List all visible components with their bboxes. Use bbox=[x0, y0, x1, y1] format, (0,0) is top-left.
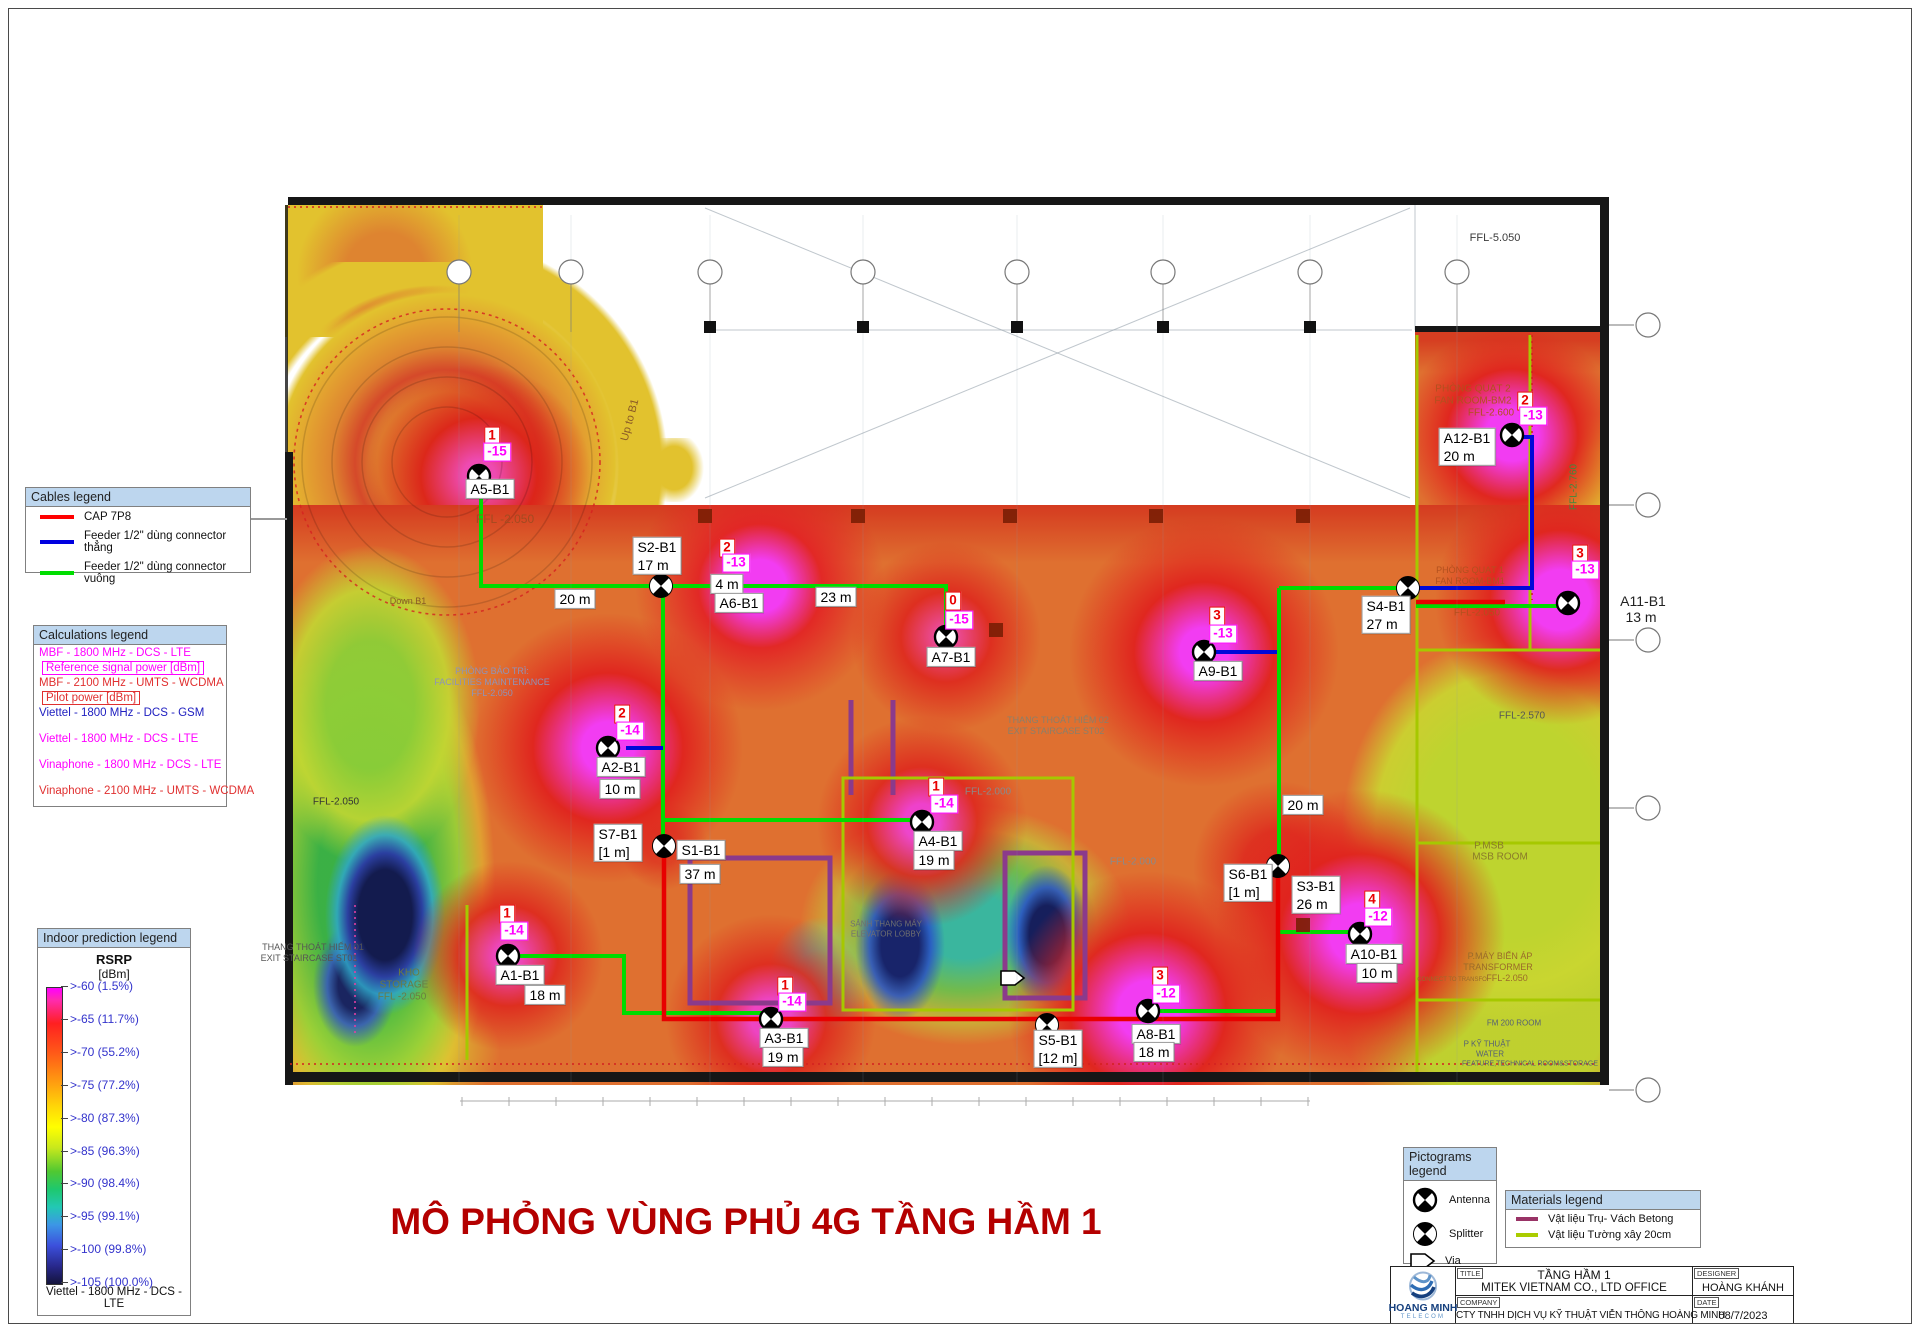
device-label[interactable]: A7-B1 bbox=[927, 647, 976, 667]
splitter-icon bbox=[1410, 1219, 1440, 1249]
device-label[interactable]: S1-B1 bbox=[677, 840, 726, 860]
device-label[interactable]: S6-B1[1 m] bbox=[1224, 864, 1273, 902]
device-S2-B1[interactable] bbox=[646, 571, 676, 601]
scale-tick bbox=[61, 1019, 68, 1020]
device-label[interactable]: 18 m bbox=[1133, 1042, 1174, 1062]
page-title: MÔ PHỎNG VÙNG PHỦ 4G TẦNG HẦM 1 bbox=[390, 1201, 1101, 1243]
grid-bubble bbox=[1005, 260, 1029, 284]
via-icon bbox=[1001, 971, 1024, 985]
cables-legend-header: Cables legend bbox=[26, 488, 250, 507]
company-name: CTY TNHH DỊCH VỤ KỸ THUẬT VIỄN THÔNG HOÀ… bbox=[1456, 1310, 1692, 1321]
device-label[interactable]: 4 m bbox=[710, 574, 743, 594]
calculation-item: Vinaphone - 1800 MHz - DCS - LTE bbox=[39, 759, 221, 771]
antenna-pictogram bbox=[1410, 1185, 1440, 1215]
antenna-icon bbox=[1497, 420, 1527, 450]
cable-legend-label: Feeder 1/2" dùng connector vuông bbox=[84, 561, 242, 585]
scale-tick bbox=[61, 1118, 68, 1119]
cable-color-swatch bbox=[40, 515, 74, 519]
calculation-item: MBF - 1800 MHz - DCS - LTE bbox=[39, 647, 221, 659]
date-value: 08/7/2023 bbox=[1693, 1310, 1793, 1322]
scale-tick bbox=[61, 1282, 68, 1283]
device-label[interactable]: S4-B127 m bbox=[1362, 596, 1411, 634]
designer-cell: DESIGNER HOÀNG KHÁNH bbox=[1693, 1267, 1793, 1296]
grid-bubble bbox=[1636, 493, 1660, 517]
date-cell: DATE 08/7/2023 bbox=[1693, 1296, 1793, 1324]
coverage-drawing-page: FFL-5.050FFL -2.050Up to B1Down B1PHÒNG … bbox=[0, 0, 1920, 1332]
dimension-ticks bbox=[460, 1097, 1310, 1106]
pictogram-item: Splitter bbox=[1404, 1215, 1496, 1249]
cable-legend-label: CAP 7P8 bbox=[84, 511, 131, 523]
device-label[interactable]: A12-B120 m bbox=[1439, 428, 1496, 466]
cable-color-swatch bbox=[40, 540, 74, 544]
title-cell: TITLE TẦNG HẦM 1 MITEK VIETNAM CO., LTD … bbox=[1456, 1267, 1692, 1296]
device-label[interactable]: 18 m bbox=[524, 985, 565, 1005]
cable-legend-item: Feeder 1/2" dùng connector thẳng bbox=[26, 526, 250, 557]
antenna-icon bbox=[1410, 1185, 1440, 1215]
prediction-legend-header: Indoor prediction legend bbox=[38, 929, 190, 948]
calculation-item: Reference signal power [dBm] bbox=[42, 661, 204, 675]
splitter-icon bbox=[649, 831, 679, 861]
device-label[interactable]: S7-B1[1 m] bbox=[594, 824, 643, 862]
cable-legend-label: Feeder 1/2" dùng connector thẳng bbox=[84, 530, 242, 554]
cable-color-swatch bbox=[40, 571, 74, 575]
materials-legend-header: Materials legend bbox=[1506, 1191, 1700, 1210]
antenna-icon bbox=[1133, 996, 1163, 1026]
pictogram-item: Antenna bbox=[1404, 1181, 1496, 1215]
device-label[interactable]: A2-B1 bbox=[597, 757, 646, 777]
material-label: Vật liệu Tường xây 20cm bbox=[1548, 1229, 1671, 1241]
device-label[interactable]: A3-B1 bbox=[760, 1028, 809, 1048]
cables-legend: Cables legend CAP 7P8Feeder 1/2" dùng co… bbox=[25, 487, 251, 573]
splitter-icon bbox=[646, 571, 676, 601]
material-label: Vật liệu Trụ- Vách Betong bbox=[1548, 1213, 1673, 1225]
material-item: Vật liệu Trụ- Vách Betong bbox=[1506, 1210, 1700, 1226]
grid-bubble bbox=[1636, 313, 1660, 337]
ramp-lane-arcs bbox=[302, 317, 592, 607]
grid-bubble bbox=[559, 260, 583, 284]
grid-group bbox=[447, 215, 1660, 1106]
scale-label: >-65 (11.7%) bbox=[70, 1012, 139, 1026]
drawing-title: TẦNG HẦM 1 bbox=[1456, 1268, 1692, 1282]
grid-bubble bbox=[698, 260, 722, 284]
logo-subtitle: TELECOM bbox=[1401, 1314, 1445, 1320]
date-tag: DATE bbox=[1694, 1297, 1719, 1308]
title-block: HOANG MINH TELECOM TITLE TẦNG HẦM 1 MITE… bbox=[1390, 1266, 1794, 1324]
device-label[interactable]: 37 m bbox=[679, 864, 720, 884]
calculation-item: Vinaphone - 2100 MHz - UMTS - WCDMA bbox=[39, 785, 221, 797]
device-A11-B1[interactable] bbox=[1553, 588, 1583, 618]
grid-bubble bbox=[447, 260, 471, 284]
cable-length-label[interactable]: 20 m bbox=[554, 589, 595, 609]
device-label[interactable]: S2-B117 m bbox=[633, 537, 682, 575]
device-label[interactable]: S3-B126 m bbox=[1292, 876, 1341, 914]
material-color-swatch bbox=[1516, 1233, 1538, 1237]
scale-label: >-85 (96.3%) bbox=[70, 1144, 140, 1158]
scale-tick bbox=[61, 986, 68, 987]
scale-tick bbox=[61, 1151, 68, 1152]
scale-label: >-95 (99.1%) bbox=[70, 1209, 140, 1223]
grid-bubble bbox=[1636, 1078, 1660, 1102]
device-label[interactable]: A5-B1 bbox=[466, 479, 515, 499]
calculation-item: Pilot power [dBm] bbox=[42, 691, 140, 705]
device-label[interactable]: A10-B1 bbox=[1346, 944, 1403, 964]
prediction-legend-footer: Viettel - 1800 MHz - DCS - LTE bbox=[38, 1286, 190, 1310]
grid-bubble bbox=[851, 260, 875, 284]
pictograms-legend: Pictograms legend AntennaSplitterVia bbox=[1403, 1147, 1497, 1264]
construction-lines bbox=[705, 200, 1415, 498]
device-A8-B1[interactable] bbox=[1133, 996, 1163, 1026]
splitter-pictogram bbox=[1410, 1219, 1440, 1249]
scale-tick bbox=[61, 1183, 68, 1184]
material-wall-20cm bbox=[467, 335, 1600, 1072]
device-label[interactable]: 19 m bbox=[913, 850, 954, 870]
company-cell: COMPANY CTY TNHH DỊCH VỤ KỸ THUẬT VIỄN T… bbox=[1456, 1296, 1692, 1324]
device-S1-B1[interactable] bbox=[649, 831, 679, 861]
company-logo: HOANG MINH TELECOM bbox=[1391, 1267, 1456, 1323]
globe-logo-icon bbox=[1404, 1270, 1442, 1302]
metric-name: RSRP bbox=[38, 952, 190, 967]
grid-bubble bbox=[1151, 260, 1175, 284]
scale-label: >-100 (99.8%) bbox=[70, 1242, 146, 1256]
rsrp-color-bar bbox=[46, 987, 63, 1285]
material-item: Vật liệu Tường xây 20cm bbox=[1506, 1226, 1700, 1242]
scale-label: >-70 (55.2%) bbox=[70, 1045, 140, 1059]
device-label[interactable]: 10 m bbox=[599, 779, 640, 799]
calculation-item: Viettel - 1800 MHz - DCS - LTE bbox=[39, 733, 221, 745]
cables-group bbox=[481, 437, 1560, 1019]
cable bbox=[481, 478, 946, 630]
calculations-legend: Calculations legend MBF - 1800 MHz - DCS… bbox=[33, 625, 227, 807]
cable-length-label[interactable]: 23 m bbox=[815, 587, 856, 607]
cable-legend-item: CAP 7P8 bbox=[26, 507, 250, 526]
cable-length-label[interactable]: 20 m bbox=[1282, 795, 1323, 815]
scale-tick bbox=[61, 1216, 68, 1217]
designer-tag: DESIGNER bbox=[1694, 1268, 1739, 1279]
calculation-item: Viettel - 1800 MHz - DCS - GSM bbox=[39, 707, 221, 719]
device-label[interactable]: S5-B1[12 m] bbox=[1034, 1030, 1083, 1068]
device-label[interactable]: 10 m bbox=[1356, 963, 1397, 983]
device-label[interactable]: A6-B1 bbox=[715, 593, 764, 613]
grid-bubble bbox=[1636, 628, 1660, 652]
grid-bubble bbox=[1445, 260, 1469, 284]
scale-tick bbox=[61, 1052, 68, 1053]
scale-label: >-80 (87.3%) bbox=[70, 1111, 140, 1125]
material-color-swatch bbox=[1516, 1217, 1538, 1221]
antenna-icon bbox=[1553, 588, 1583, 618]
drawing-subtitle: MITEK VIETNAM CO., LTD OFFICE bbox=[1456, 1282, 1692, 1294]
materials-legend: Materials legend Vật liệu Trụ- Vách Beto… bbox=[1505, 1190, 1701, 1248]
grid-bubble bbox=[1298, 260, 1322, 284]
calculation-item: MBF - 2100 MHz - UMTS - WCDMA bbox=[39, 677, 221, 689]
device-label[interactable]: 19 m bbox=[762, 1047, 803, 1067]
pictograms-legend-header: Pictograms legend bbox=[1404, 1148, 1496, 1181]
indoor-prediction-legend: Indoor prediction legend RSRP [dBm] >-60… bbox=[37, 928, 191, 1316]
company-tag: COMPANY bbox=[1457, 1297, 1500, 1308]
cable bbox=[664, 852, 1278, 1019]
scale-tick bbox=[61, 1249, 68, 1250]
scale-label: >-60 (1.5%) bbox=[70, 979, 133, 993]
material-wall-betong bbox=[690, 700, 1085, 1003]
calculations-legend-header: Calculations legend bbox=[34, 626, 226, 645]
scale-label: >-90 (98.4%) bbox=[70, 1176, 140, 1190]
pictogram-label: Antenna bbox=[1449, 1194, 1490, 1206]
scale-label: >-75 (77.2%) bbox=[70, 1078, 140, 1092]
grid-bubble bbox=[1636, 796, 1660, 820]
cable-legend-item: Feeder 1/2" dùng connector vuông bbox=[26, 557, 250, 588]
logo-name: HOANG MINH bbox=[1389, 1302, 1458, 1314]
device-A12-B1[interactable] bbox=[1497, 420, 1527, 450]
pictogram-label: Splitter bbox=[1449, 1228, 1483, 1240]
scale-tick bbox=[61, 1085, 68, 1086]
designer-name: HOÀNG KHÁNH bbox=[1693, 1282, 1793, 1294]
device-label[interactable]: A9-B1 bbox=[1194, 661, 1243, 681]
device-label[interactable]: A1-B1 bbox=[496, 965, 545, 985]
device-label[interactable]: A4-B1 bbox=[914, 831, 963, 851]
title-tag: TITLE bbox=[1457, 1268, 1483, 1279]
